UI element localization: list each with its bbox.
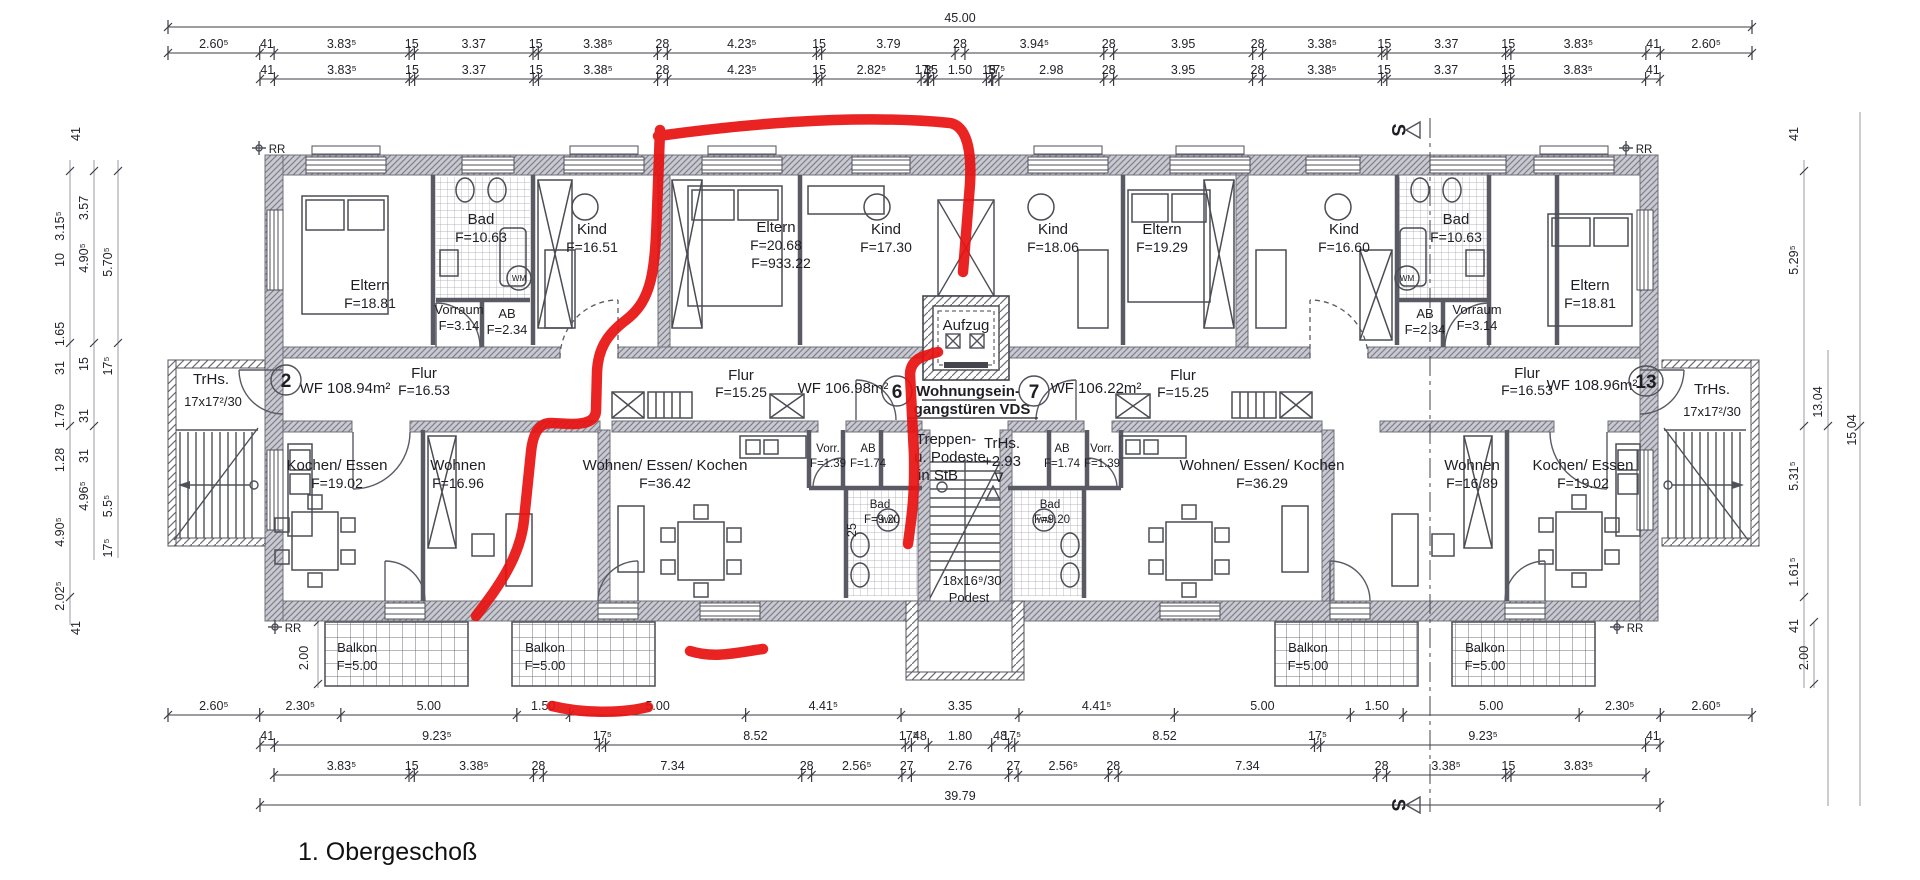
- dim-label: 41: [260, 729, 274, 743]
- balcony-name: Balkon: [337, 640, 377, 655]
- room-area: F=36.29: [1236, 475, 1288, 491]
- dim-label: 8.52: [1152, 729, 1176, 743]
- dim-label: 3.38⁵: [1431, 759, 1461, 773]
- dim-label: 15: [812, 63, 826, 77]
- room-name: Vorr.: [1090, 443, 1114, 455]
- dim-label: 3.35: [948, 699, 972, 713]
- wf-area-label: WF 106.98m²: [798, 380, 889, 397]
- room-area: F=19.02: [311, 475, 363, 491]
- room-area: F=19.02: [1557, 475, 1609, 491]
- dim-label: 7.34: [1235, 759, 1259, 773]
- dim-label: 3.38⁵: [583, 63, 613, 77]
- wm-label: WM: [881, 516, 896, 525]
- entry-doors-label-line1: Wohnungsein-: [916, 383, 1020, 400]
- room-name: Wohnen/ Essen/ Kochen: [583, 457, 748, 474]
- wf-area-label: WF 108.94m²: [300, 380, 391, 397]
- unit-number-2: 2: [281, 371, 292, 392]
- dim-label: 3.83⁵: [327, 759, 357, 773]
- dim-label: 31: [77, 409, 91, 423]
- dim-label: 15: [77, 357, 91, 371]
- flur-label: Flur: [1514, 365, 1540, 382]
- dim-label: 3.83⁵: [1563, 63, 1593, 77]
- dim-label: 41: [1646, 63, 1660, 77]
- podest-label: Podest: [949, 590, 990, 605]
- balcony-name: Balkon: [1465, 640, 1505, 655]
- red-stroke-swipe-2: [690, 649, 763, 655]
- room-name: AB: [1416, 306, 1433, 321]
- dim-label: 31: [77, 449, 91, 463]
- dim-label: 1.50: [1365, 699, 1389, 713]
- dim-label: 41: [1787, 619, 1801, 633]
- dim-label: 1.50: [948, 63, 972, 77]
- dim-label: 3.57: [77, 196, 91, 220]
- dim-label: 1.28: [53, 448, 67, 472]
- dim-label: 2.56⁵: [1048, 759, 1078, 773]
- dim-label: 2.60⁵: [1691, 37, 1721, 51]
- dim-label: 41: [260, 37, 274, 51]
- floorplan-canvas: 45.00 2.60⁵413.83⁵153.37153.38⁵284.23⁵15…: [0, 0, 1920, 880]
- dim-label: 2.30⁵: [1605, 699, 1635, 713]
- room-name: Wohnen: [1444, 457, 1500, 474]
- dim-row-bottom-total: 39.79: [256, 789, 1664, 812]
- dim-label: 2.02⁵: [53, 581, 67, 611]
- dim-label: 9.23⁵: [422, 729, 452, 743]
- dim-label: 2.60⁵: [199, 37, 229, 51]
- dim-label: 3.37: [462, 63, 486, 77]
- room-area: F=10.63: [455, 229, 507, 245]
- room-name: Vorr.: [816, 443, 840, 455]
- dim-label: 3.37: [1434, 37, 1458, 51]
- dim-label: 5.00: [1250, 699, 1274, 713]
- room-area: F=2.34: [487, 322, 528, 337]
- dim-label: 15: [1501, 63, 1515, 77]
- room-area: F=36.42: [639, 475, 691, 491]
- dim-label: 25: [845, 523, 859, 537]
- room-name: Bad: [1443, 211, 1470, 228]
- dim-label: 3.95: [1171, 37, 1195, 51]
- dim-label: 15: [1377, 63, 1391, 77]
- dim-label: 3.95: [1171, 63, 1195, 77]
- dim-row-bottom-b: 419.23⁵17⁵8.5217⁵481.804817⁵8.5217⁵9.23⁵…: [256, 729, 1664, 752]
- dim-label: 3.38⁵: [1307, 37, 1337, 51]
- trhs-level-value: +2.93: [983, 453, 1021, 470]
- room-area: F=16.89: [1446, 475, 1498, 491]
- podest-steps: 18x16⁹/30: [942, 573, 1001, 588]
- dim-label: 41: [1646, 37, 1660, 51]
- trhs-right-label: TrHs.: [1694, 381, 1730, 398]
- room-name: Bad: [468, 211, 495, 228]
- dim-label: 2.00: [1797, 646, 1811, 670]
- room-name: Bad: [870, 499, 890, 511]
- dim-label: 13.04: [1811, 386, 1825, 417]
- room-name: Eltern: [1142, 221, 1181, 238]
- treppen-label-line2: u. Podeste: [914, 449, 986, 466]
- dim-label: 15: [529, 37, 543, 51]
- treppen-label-line1: Treppen-: [916, 431, 976, 448]
- dim-label: 9.23⁵: [1468, 729, 1498, 743]
- floor-plan-drawing: 45.00 2.60⁵413.83⁵153.37153.38⁵284.23⁵15…: [0, 0, 1920, 880]
- trhs-left-steps: 17x17²/30: [184, 394, 242, 409]
- dim-label: 15.04: [1845, 414, 1859, 445]
- dim-label: 2.56⁵: [842, 759, 872, 773]
- room-area2: F=933.22: [751, 255, 811, 271]
- room-area: F=16.51: [566, 239, 618, 255]
- dim-label: 3.38⁵: [459, 759, 489, 773]
- unit-number-13: 13: [1635, 372, 1656, 393]
- flur-area: F=15.25: [715, 384, 767, 400]
- rr-marker-top-right: RR: [1619, 141, 1652, 156]
- room-area: F=1.39: [1084, 458, 1120, 470]
- room-name: Eltern: [350, 277, 389, 294]
- dim-label: 1.65: [53, 322, 67, 346]
- flur-area: F=16.53: [398, 382, 450, 398]
- dim-row-top-total: 45.00: [164, 11, 1756, 34]
- dim-label: 4.90⁵: [53, 517, 67, 547]
- rr-label: RR: [1627, 623, 1644, 635]
- dim-label: 41: [1646, 729, 1660, 743]
- room-name: Vorraum: [1452, 302, 1501, 317]
- dim-label: 15: [405, 37, 419, 51]
- dim-label: 3.37: [462, 37, 486, 51]
- treppen-label-line3: in StB: [918, 467, 958, 484]
- flur-area: F=15.25: [1157, 384, 1209, 400]
- room-area: F=1.39: [810, 458, 846, 470]
- room-area: F=2.34: [1405, 322, 1446, 337]
- room-area: F=16.60: [1318, 239, 1370, 255]
- room-area: F=10.63: [1430, 229, 1482, 245]
- trhs-level-label: TrHs.: [984, 435, 1020, 452]
- drawing-title: 1. Obergeschoß: [298, 838, 477, 866]
- room-area: F=19.29: [1136, 239, 1188, 255]
- room-area: F=18.06: [1027, 239, 1079, 255]
- dim-label: 3.83⁵: [1564, 759, 1594, 773]
- unit-number-6: 6: [892, 382, 903, 403]
- red-stroke-swipe-1: [552, 706, 648, 712]
- room-name: AB: [498, 306, 515, 321]
- room-name: Bad: [1040, 499, 1060, 511]
- room-area: F=3.14: [1457, 318, 1498, 333]
- red-stroke-top: [658, 119, 970, 272]
- dim-label: 17⁵: [101, 538, 115, 557]
- dim-row-bottom-c: 3.83⁵153.38⁵287.34282.56⁵272.76272.56⁵28…: [270, 759, 1650, 782]
- room-area: F=3.14: [439, 318, 480, 333]
- dim-row-bottom-a: 2.60⁵2.30⁵5.001.505.004.41⁵3.354.41⁵5.00…: [164, 699, 1756, 722]
- rr-marker-bottom-left: RR: [268, 620, 301, 635]
- room-area: F=17.30: [860, 239, 912, 255]
- dim-label: 5.70⁵: [101, 247, 115, 277]
- room-name: Eltern: [756, 219, 795, 236]
- dim-label: 2.82⁵: [857, 63, 887, 77]
- room-name: Kind: [1038, 221, 1068, 238]
- dim-label: 2.60⁵: [199, 699, 229, 713]
- dim-label: 4.90⁵: [77, 243, 91, 273]
- dim-label: 1.61⁵: [1787, 557, 1801, 587]
- dim-label: 5.00: [417, 699, 441, 713]
- room-area: F=1.74: [850, 458, 887, 470]
- dim-label: 8.52: [743, 729, 767, 743]
- dim-label: 3.37: [1434, 63, 1458, 77]
- dim-label: 5.00: [1479, 699, 1503, 713]
- level-nabla-icon: ∇: [994, 470, 1004, 485]
- rr-marker-top-left: RR: [252, 141, 285, 156]
- dim-label: 10: [53, 253, 67, 267]
- room-area: F=18.81: [1564, 295, 1616, 311]
- dim-label: 4.41⁵: [1082, 699, 1112, 713]
- room-area: F=18.81: [344, 295, 396, 311]
- dim-label: 2.98: [1039, 63, 1063, 77]
- room-name: Vorraum: [434, 302, 483, 317]
- dim-label: 31: [53, 361, 67, 375]
- dim-label: 7.34: [660, 759, 684, 773]
- room-name: Kind: [1329, 221, 1359, 238]
- room-name: Kochen/ Essen: [1533, 457, 1634, 474]
- dim-label: 3.15⁵: [53, 211, 67, 241]
- aufzug-label: Aufzug: [943, 317, 990, 334]
- room-name: Wohnen/ Essen/ Kochen: [1180, 457, 1345, 474]
- dim-label: 15: [1377, 37, 1391, 51]
- dim-label: 5.29⁵: [1787, 245, 1801, 275]
- dim-label: 3.83⁵: [327, 37, 357, 51]
- dim-label: 2.76: [948, 759, 972, 773]
- balcony-area: F=5.00: [525, 658, 566, 673]
- dim-label: 45.00: [944, 11, 975, 25]
- dim-label: 2.60⁵: [1691, 699, 1721, 713]
- rr-label: RR: [269, 144, 286, 156]
- room-name: Kind: [871, 221, 901, 238]
- balcony-area: F=5.00: [1288, 658, 1329, 673]
- dim-label: 1.79: [53, 404, 67, 428]
- room-name: Kind: [577, 221, 607, 238]
- balcony-area: F=5.00: [1465, 658, 1506, 673]
- room-name: Eltern: [1570, 277, 1609, 294]
- dim-label: 5.31⁵: [1787, 461, 1801, 491]
- dim-label: 1.80: [948, 729, 972, 743]
- wf-area-label: WF 108.96m²: [1547, 377, 1638, 394]
- flur-label: Flur: [411, 365, 437, 382]
- room-area: F=16.96: [432, 475, 484, 491]
- room-area: F=1.74: [1044, 458, 1081, 470]
- dim-label: 17⁵: [101, 356, 115, 375]
- dim-label: 41: [69, 621, 83, 635]
- room-name: Kochen/ Essen: [287, 457, 388, 474]
- dim-label: 3.79: [876, 37, 900, 51]
- dim-label: 4.23⁵: [727, 63, 757, 77]
- dim-label: 39.79: [944, 789, 975, 803]
- wm-label: WM: [1037, 516, 1052, 525]
- dim-label: 4.23⁵: [727, 37, 757, 51]
- room-area: F=20.68: [750, 237, 802, 253]
- dim-label: 15: [924, 63, 938, 77]
- dim-label: 3.83⁵: [327, 63, 357, 77]
- balcony-name: Balkon: [1288, 640, 1328, 655]
- room-name: AB: [1054, 443, 1070, 455]
- dim-label: 15: [1501, 37, 1515, 51]
- trhs-left-label: TrHs.: [193, 371, 229, 388]
- right-dimension-stack: 41 5.29⁵ 13.04 15.04 5.31⁵ 1.61⁵ 41 2.00: [1787, 127, 1859, 670]
- entry-doors-label-line2: gangstüren VDS: [914, 401, 1031, 418]
- flur-area: F=16.53: [1501, 382, 1553, 398]
- dim-label: 48: [913, 729, 927, 743]
- dim-label: 3.83⁵: [1564, 37, 1594, 51]
- balcony-area: F=5.00: [337, 658, 378, 673]
- flur-label: Flur: [728, 367, 754, 384]
- dim-label: 3.38⁵: [583, 37, 613, 51]
- dim-label: 15: [529, 63, 543, 77]
- wm-label: WM: [1400, 274, 1415, 283]
- rr-label: RR: [1636, 144, 1653, 156]
- rr-marker-bottom-right: RR: [1610, 620, 1643, 635]
- wm-label: WM: [512, 274, 527, 283]
- unit-number-7: 7: [1029, 382, 1040, 403]
- dim-label: 15: [405, 759, 419, 773]
- dim-label: 41: [1787, 127, 1801, 141]
- wf-area-label: WF 106.22m²: [1051, 380, 1142, 397]
- room-name: AB: [860, 443, 876, 455]
- dim-label: 41: [69, 127, 83, 141]
- dim-label: 5.5⁵: [101, 495, 115, 518]
- dim-label: 3.38⁵: [1307, 63, 1337, 77]
- trhs-right-steps: 17x17²/30: [1683, 404, 1741, 419]
- rr-label: RR: [285, 623, 302, 635]
- dim-label: 15: [812, 37, 826, 51]
- room-name: Wohnen: [430, 457, 486, 474]
- dim-label: 4.41⁵: [809, 699, 839, 713]
- dim-label: 41: [260, 63, 274, 77]
- dim-label: 15: [1501, 759, 1515, 773]
- dim-label: 15: [405, 63, 419, 77]
- dim-row-top-b: 413.83⁵153.37153.38⁵284.23⁵152.82⁵17⁵315…: [256, 63, 1664, 86]
- flur-label: Flur: [1170, 367, 1196, 384]
- dim-label: 2.00: [297, 646, 311, 670]
- dim-label: 2.30⁵: [286, 699, 316, 713]
- dim-label: 4.96⁵: [77, 481, 91, 511]
- dim-label: 3.94⁵: [1020, 37, 1050, 51]
- balcony-name: Balkon: [525, 640, 565, 655]
- dim-row-top-a: 2.60⁵413.83⁵153.37153.38⁵284.23⁵153.7928…: [164, 37, 1756, 60]
